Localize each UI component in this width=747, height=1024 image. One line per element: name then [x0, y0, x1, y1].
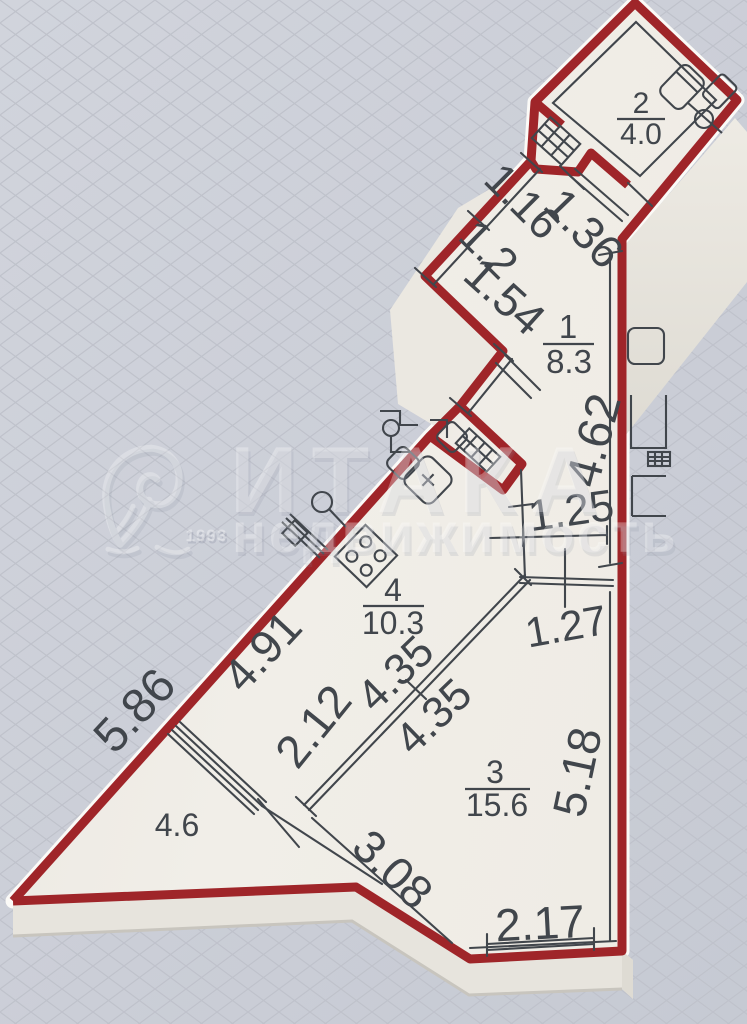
svg-text:4: 4 — [384, 572, 402, 608]
svg-text:15.6: 15.6 — [466, 787, 528, 823]
svg-text:1: 1 — [559, 308, 577, 345]
svg-text:2: 2 — [633, 87, 650, 120]
svg-text:1993: 1993 — [186, 526, 228, 545]
svg-text:недвижимость: недвижимость — [233, 503, 680, 566]
svg-text:4.0: 4.0 — [620, 118, 662, 151]
svg-text:10.3: 10.3 — [362, 605, 424, 641]
svg-text:2.17: 2.17 — [494, 895, 586, 952]
svg-text:3: 3 — [486, 754, 504, 790]
svg-text:8.3: 8.3 — [546, 343, 592, 380]
svg-text:4.6: 4.6 — [155, 807, 199, 843]
